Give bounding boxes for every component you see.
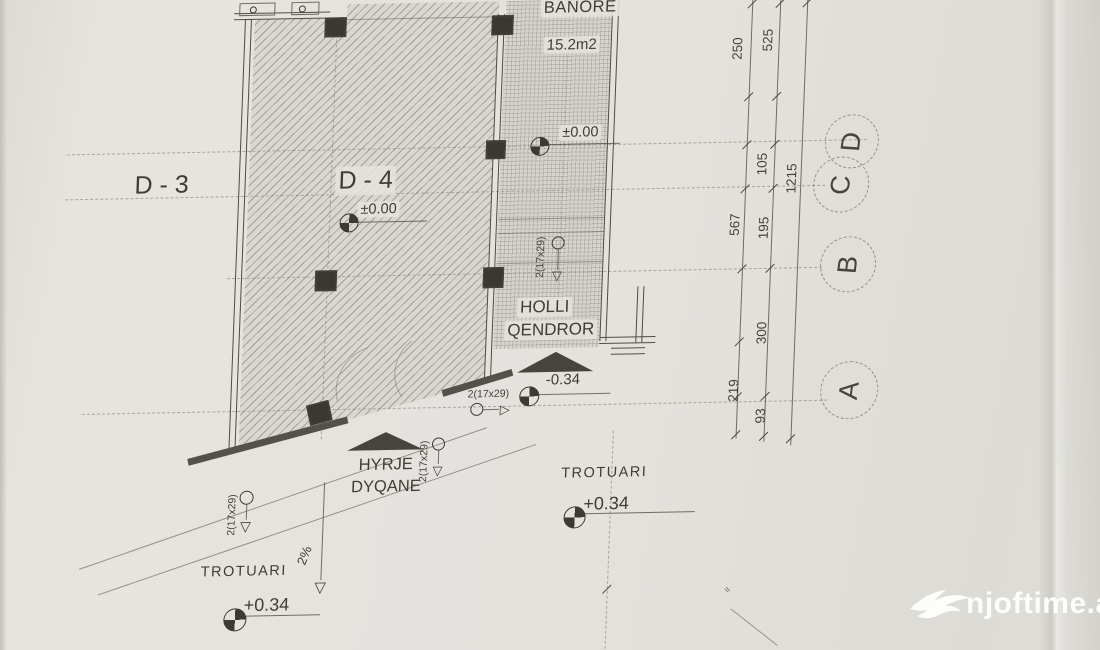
- slope-label: 2%: [294, 544, 315, 567]
- column: [324, 17, 347, 37]
- axis-letter: C: [825, 174, 858, 196]
- column: [482, 267, 504, 288]
- entrance-label-line2: DYQANE: [351, 477, 421, 497]
- pen-scribble: ≈: [721, 584, 732, 596]
- sidewalk-label-right: TROTUARI: [561, 464, 648, 482]
- room-area-banore: 15.2m2: [543, 36, 600, 54]
- entrance-arrow-hall: [517, 351, 594, 372]
- stair-direction-line: [438, 450, 440, 464]
- dim-label: 250: [730, 37, 746, 60]
- axis-bubble-a: A: [819, 361, 879, 420]
- level-sidewalk-left: +0.34: [243, 594, 289, 616]
- plan-drawing: ≈ BANORE 15.2m2 D - 3 D - 4 HOLLI QENDRO…: [0, 0, 1100, 650]
- dim-label: 525: [760, 29, 776, 52]
- axis-letter: B: [832, 254, 865, 274]
- stair-arrow-right-icon: ▷: [499, 402, 510, 418]
- dim-label: 105: [754, 153, 770, 176]
- gridline-vertical-3: [605, 431, 614, 649]
- axis-bubble-b: B: [819, 236, 877, 293]
- column: [314, 270, 337, 291]
- stair-start-circle: [432, 437, 445, 450]
- axis-letter: D: [835, 131, 868, 153]
- wall-neighbor-stub-v: [635, 286, 644, 342]
- stair-arrow-down-icon: ▽: [432, 463, 443, 479]
- paper-edge-shadow: [0, 0, 7, 650]
- photographed-floor-plan: ≈ BANORE 15.2m2 D - 3 D - 4 HOLLI QENDRO…: [0, 0, 1100, 650]
- stair-notation: 2(17x29): [534, 236, 548, 278]
- dim-label: 567: [727, 213, 743, 236]
- dim-label: 195: [756, 217, 772, 240]
- paper-edge-right: [1060, 0, 1100, 650]
- stair-notation: 2(17x29): [225, 494, 239, 536]
- column: [485, 140, 506, 159]
- wall-neighbor-stub-h: [611, 347, 645, 355]
- level-sidewalk-right: +0.34: [583, 493, 629, 515]
- level-leader: [538, 393, 610, 395]
- slope-arrow-down-icon: ▽: [314, 578, 326, 596]
- hall-label-line1: HOLLI: [517, 297, 573, 318]
- sidewalk-label-left: TROTUARI: [200, 563, 287, 581]
- dim-label: 93: [753, 408, 769, 423]
- stair-start-circle: [470, 403, 483, 416]
- watermark: njoftime.al: [906, 580, 1100, 628]
- axis-letter: A: [833, 380, 866, 400]
- dimension-line-outer: [790, 0, 808, 445]
- stair-direction-line: [483, 409, 499, 410]
- entrance-label-line1: HYRJE: [358, 455, 413, 475]
- stair-notation: 2(17x29): [467, 388, 509, 401]
- sidewalk-edge-line: [98, 444, 536, 595]
- stair-arrow-down-icon: ▽: [552, 268, 563, 284]
- stair-arrow-down-icon: ▽: [240, 518, 251, 535]
- dim-label: 300: [754, 322, 770, 345]
- fixture: [239, 3, 275, 17]
- level-hall: ±0.00: [559, 124, 602, 141]
- level-entry: -0.34: [545, 371, 580, 389]
- hall-label-line2: QENDROR: [504, 319, 598, 341]
- dim-label: 219: [725, 379, 741, 402]
- level-d4: ±0.00: [357, 201, 400, 218]
- slope-line: [320, 482, 325, 580]
- axis-bubble-c: C: [812, 156, 870, 213]
- dim-label-total: 1215: [783, 163, 799, 193]
- stray-pen-line: [730, 608, 777, 645]
- room-label-banore: BANORE: [540, 0, 619, 18]
- entrance-arrow-shop: [347, 431, 424, 450]
- wall-hall-return: [599, 336, 655, 344]
- column: [491, 15, 514, 35]
- watermark-text: njoftime.al: [966, 587, 1100, 621]
- unit-label-d3: D - 3: [134, 171, 189, 201]
- level-marker-icon: [519, 386, 540, 406]
- unit-label-d4: D - 4: [335, 166, 396, 196]
- stair-notation: 2(17x29): [417, 440, 431, 482]
